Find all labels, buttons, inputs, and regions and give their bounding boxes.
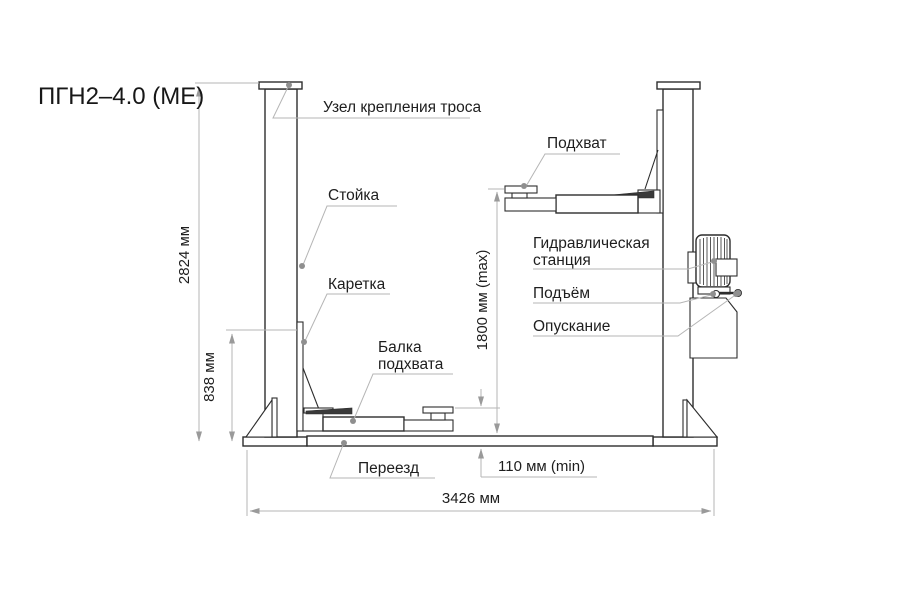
label-driveover: Переезд — [358, 460, 419, 477]
pickup-beam-outer — [404, 420, 453, 431]
lift-diagram: 2824 мм 838 мм 1800 мм (max) 110 мм (min… — [0, 0, 900, 600]
left-post-body — [265, 89, 297, 437]
pickup-pad-stem-lowered — [431, 413, 445, 420]
callout-pickup: Подхват — [521, 135, 620, 189]
pickup-beam-main — [323, 417, 404, 431]
pickup-pad-stem-raised — [512, 193, 527, 198]
pickup-arm-main — [556, 195, 638, 213]
left-post — [246, 82, 302, 437]
pickup-beam-dot — [350, 418, 356, 424]
dim-carriage-height-text: 838 мм — [201, 352, 218, 402]
pickup-pad-lowered — [423, 407, 453, 413]
left-carriage-lowered — [297, 322, 453, 431]
left-post-stiffener — [272, 398, 277, 437]
motor-junction-box — [716, 259, 737, 276]
driveover-plate — [307, 436, 653, 446]
right-post-gusset — [687, 400, 717, 437]
label-pickup: Подхват — [547, 135, 607, 152]
right-baseplate — [653, 437, 717, 446]
label-hydraulic-line2: станция — [533, 252, 591, 269]
label-pickup-beam-line1: Балка — [378, 339, 422, 356]
lowering-dot — [733, 291, 739, 297]
pickup-pad-raised — [505, 186, 537, 193]
callout-carriage: Каретка — [301, 276, 390, 345]
left-baseplate — [243, 437, 307, 446]
label-hydraulic-line1: Гидравлическая — [533, 235, 650, 252]
left-post-cap — [259, 82, 302, 89]
right-carriage-brace — [645, 150, 658, 189]
dim-total-width-text: 3426 мм — [442, 490, 500, 507]
dim-total-height-text: 2824 мм — [176, 226, 193, 284]
right-carriage-raised — [505, 110, 663, 213]
driveover-dot — [341, 440, 347, 446]
dim-pad-height-min-text: 110 мм (min) — [498, 458, 585, 475]
cable-unit-dot — [286, 82, 292, 88]
floor-base — [243, 436, 717, 446]
pickup-arm-outer — [505, 198, 556, 211]
label-post: Стойка — [328, 187, 380, 204]
right-post-stiffener — [683, 400, 687, 437]
post-dot — [299, 263, 305, 269]
carriage-dot — [301, 339, 307, 345]
diagram-canvas: 2824 мм 838 мм 1800 мм (max) 110 мм (min… — [0, 0, 900, 600]
label-lowering: Опускание — [533, 318, 610, 335]
callout-cable-unit: Узел крепления троса — [273, 82, 481, 118]
label-pickup-beam-line2: подхвата — [378, 356, 444, 373]
callout-post: Стойка — [299, 187, 397, 269]
label-carriage: Каретка — [328, 276, 386, 293]
label-cable-unit: Узел крепления троса — [323, 99, 481, 116]
dim-lift-height-max-text: 1800 мм (max) — [474, 250, 491, 351]
left-carriage-strip — [297, 322, 303, 431]
left-carriage-brace — [303, 368, 320, 412]
left-post-gusset — [246, 400, 272, 437]
hydraulic-dot — [711, 258, 717, 264]
pickup-dot — [521, 183, 527, 189]
diagram-title: ПГН2–4.0 (ME) — [38, 83, 204, 110]
dimension-pad-height-min: 110 мм (min) — [455, 389, 597, 477]
lift-dot — [710, 291, 716, 297]
dimension-lift-height-max: 1800 мм (max) — [474, 189, 504, 433]
right-post-cap — [657, 82, 700, 89]
label-lift: Подъём — [533, 285, 590, 302]
oil-tank — [690, 298, 737, 358]
